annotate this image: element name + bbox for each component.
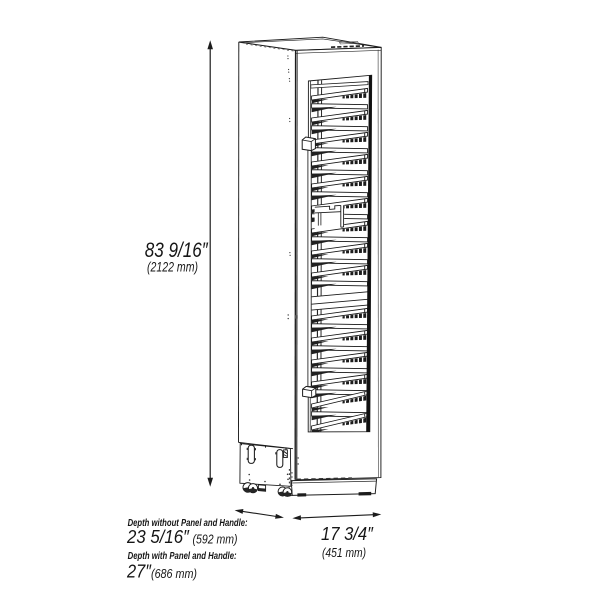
svg-text:(2122 mm): (2122 mm): [147, 259, 198, 275]
svg-text:(451 mm): (451 mm): [322, 545, 366, 560]
svg-text:27″: 27″: [126, 560, 152, 581]
svg-text:(686 mm): (686 mm): [151, 566, 197, 581]
svg-text:17 3/4″: 17 3/4″: [321, 523, 374, 544]
svg-text:23 5/16″: 23 5/16″: [126, 526, 190, 547]
svg-text:(592 mm): (592 mm): [193, 532, 238, 547]
